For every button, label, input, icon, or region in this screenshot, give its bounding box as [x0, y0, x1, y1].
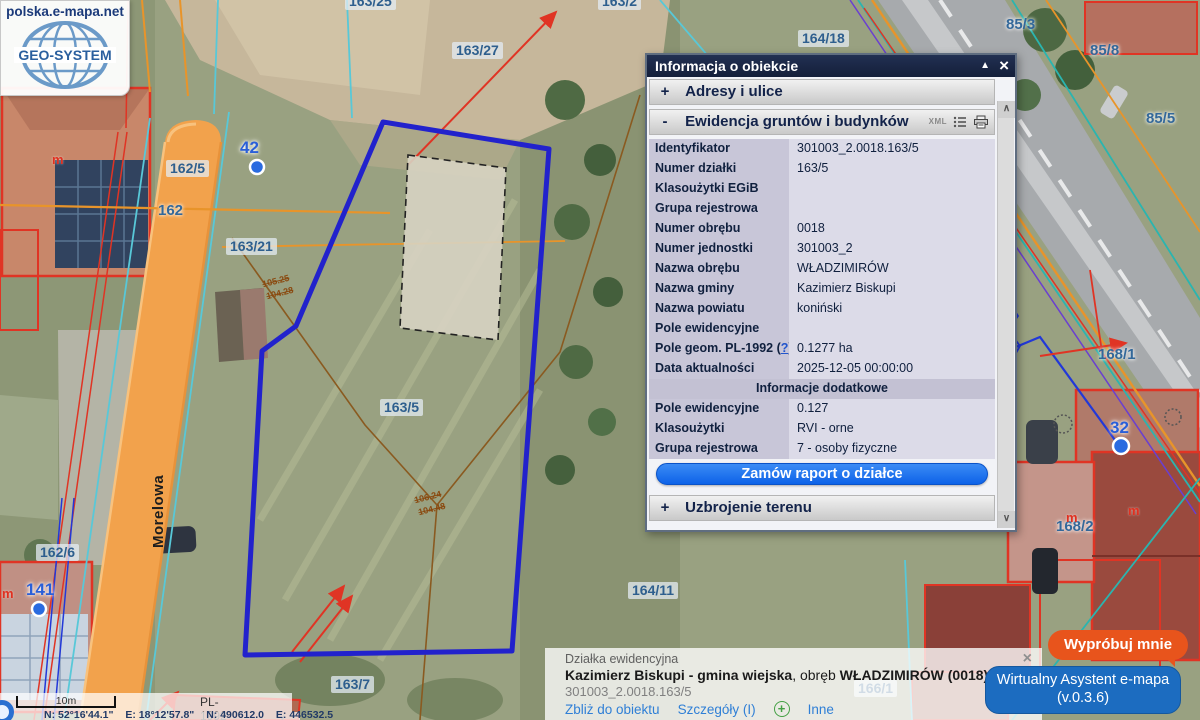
object-info-panel: Informacja o obiekcie ▲ × + Adresy i uli… [645, 53, 1017, 532]
attr-label: Pole ewidencyjne [649, 399, 789, 419]
coord-northing: N: 490612.0 [206, 709, 264, 720]
building-m-label: m [1066, 510, 1078, 525]
attr-value: 2025-12-05 00:00:00 [789, 359, 995, 379]
order-parcel-report-button[interactable]: Zamów raport o działce [656, 463, 988, 485]
attr-label: Numer obrębu [649, 219, 789, 239]
section-label: Ewidencja gruntów i budynków [685, 113, 908, 130]
assistant-version: (v.0.3.6) [992, 689, 1174, 707]
attr-value [789, 179, 995, 199]
parcel-label: 162/5 [166, 160, 209, 177]
try-me-bubble[interactable]: Wypróbuj mnie [1048, 630, 1188, 660]
attr-value: 0018 [789, 219, 995, 239]
close-icon[interactable]: × [999, 56, 1009, 76]
attr-value [789, 199, 995, 219]
attr-label: Klasoużytki EGiB [649, 179, 789, 199]
scale-label: 10m [56, 695, 76, 707]
site-logo[interactable]: polska.e-mapa.net GEO-SYSTEM [0, 0, 130, 96]
coord-lon: E: 18°12'57.8" [125, 709, 194, 720]
attr-label: Grupa rejestrowa [649, 199, 789, 219]
attr-value: koniński [789, 299, 995, 319]
aerial-map[interactable] [0, 0, 1200, 720]
building-m-label: m [52, 152, 64, 167]
panel-title: Informacja o obiekcie [655, 58, 798, 74]
address-label: 141 [26, 580, 54, 600]
attr-label: Numer jednostki [649, 239, 789, 259]
expand-icon: + [658, 496, 672, 520]
coordinates-readout: N: 52°16'44.1" E: 18°12'57.8" N: 490612.… [44, 709, 342, 720]
attr-label: Identyfikator [649, 139, 789, 159]
scroll-down-icon[interactable]: ∨ [998, 511, 1015, 528]
parcel-label: 85/8 [1090, 42, 1119, 59]
virtual-assistant-button[interactable]: Wirtualny Asystent e-mapa (v.0.3.6) [985, 666, 1181, 714]
list-icon[interactable] [953, 115, 967, 129]
attr-label: Klasoużytki [649, 419, 789, 439]
svg-text:GEO-SYSTEM: GEO-SYSTEM [18, 47, 111, 63]
attr-label: Nazwa obrębu [649, 259, 789, 279]
site-name: polska.e-mapa.net [1, 1, 129, 19]
section-label: Uzbrojenie terenu [685, 499, 812, 516]
attr-label: Grupa rejestrowa [649, 439, 789, 459]
zoom-to-object-link[interactable]: Zbliż do obiektu [565, 702, 660, 717]
building-m-label: m [2, 586, 14, 601]
attr-value [789, 319, 995, 339]
scale-bar: 10m [16, 696, 116, 708]
scroll-up-icon[interactable]: ∧ [998, 101, 1015, 118]
minimize-icon[interactable]: ▲ [980, 55, 990, 77]
panel-body: + Adresy i ulice - Ewidencja gruntów i b… [647, 77, 1015, 530]
panel-scrollbar[interactable]: ∧ ∨ [997, 101, 1014, 528]
e-mapa-app: { "logo": { "site": "polska.e-mapa.net",… [0, 0, 1200, 720]
additional-info-header: Informacje dodatkowe [649, 379, 995, 399]
attr-label: Nazwa gminy [649, 279, 789, 299]
parcel-label: 163/2 [598, 0, 641, 10]
attr-label: Numer działki [649, 159, 789, 179]
panel-titlebar[interactable]: Informacja o obiekcie ▲ × [647, 55, 1015, 77]
attributes-table: Identyfikator301003_2.0018.163/5 Numer d… [649, 139, 995, 459]
geo-system-globe-icon: GEO-SYSTEM [6, 19, 124, 91]
xml-icon[interactable]: XML [929, 110, 947, 134]
building-m-label: m [1128, 503, 1140, 518]
attr-value: 301003_2.0018.163/5 [789, 139, 995, 159]
attr-value: 301003_2 [789, 239, 995, 259]
section-uzbrojenie[interactable]: + Uzbrojenie terenu [649, 495, 995, 521]
attr-value: 7 - osoby fizyczne [789, 439, 995, 459]
address-label: 32 [1110, 418, 1129, 438]
parcel-label: 164/11 [628, 582, 678, 599]
object-id: 301003_2.0018.163/5 [565, 684, 1042, 699]
object-info-bar: Działka ewidencyjna Kazimierz Biskupi - … [545, 648, 1042, 720]
attr-value: Kazimierz Biskupi [789, 279, 995, 299]
attr-value: RVI - orne [789, 419, 995, 439]
attr-label: Pole ewidencyjne [649, 319, 789, 339]
parcel-label: 162 [158, 202, 183, 219]
attr-value: 0.1277 ha [789, 339, 995, 359]
attr-label: Pole geom. PL-1992 (?) [649, 339, 789, 359]
parcel-label: 163/21 [226, 238, 277, 255]
parcel-label: 163/25 [345, 0, 396, 10]
details-link[interactable]: Szczegóły (I) [678, 702, 756, 717]
expand-icon: + [658, 80, 672, 104]
parcel-label: 164/18 [798, 30, 849, 47]
attr-value: 163/5 [789, 159, 995, 179]
other-link[interactable]: Inne [808, 702, 834, 717]
parcel-label: 163/27 [452, 42, 503, 59]
object-category: Działka ewidencyjna [565, 652, 1042, 666]
coord-lat: N: 52°16'44.1" [44, 709, 113, 720]
address-label: 42 [240, 138, 259, 158]
parcel-label: 163/7 [331, 676, 374, 693]
street-name-label: Morelowa [150, 428, 167, 548]
coord-easting: E: 446532.5 [276, 709, 333, 720]
assistant-title: Wirtualny Asystent e-mapa [992, 671, 1174, 689]
printer-icon[interactable] [973, 115, 989, 129]
object-name: Kazimierz Biskupi - gmina wiejska, obręb… [565, 667, 1042, 683]
attr-value: WŁADZIMIRÓW [789, 259, 995, 279]
collapse-icon: - [658, 110, 672, 134]
parcel-label: 85/3 [1006, 16, 1035, 33]
planned-building-outline [400, 155, 506, 340]
obreb-prefix: , obręb [792, 667, 839, 683]
parcel-label: 168/1 [1098, 346, 1136, 363]
attr-label: Nazwa powiatu [649, 299, 789, 319]
obreb-name: WŁADZIMIRÓW (0018) [840, 667, 989, 683]
gmina-name: Kazimierz Biskupi - gmina wiejska [565, 667, 792, 683]
coordinates-strip: N: 52°16'44.1" E: 18°12'57.8" N: 490612.… [0, 712, 300, 720]
attr-value: 0.127 [789, 399, 995, 419]
parcel-label: 85/5 [1146, 110, 1175, 127]
add-icon[interactable]: + [774, 701, 790, 717]
parcel-label: 162/6 [36, 544, 79, 561]
section-label: Adresy i ulice [685, 83, 783, 100]
section-ewidencja[interactable]: - Ewidencja gruntów i budynków XML [649, 109, 995, 135]
section-adresy[interactable]: + Adresy i ulice [649, 79, 995, 105]
attr-label: Data aktualności [649, 359, 789, 379]
parcel-label: 163/5 [380, 399, 423, 416]
